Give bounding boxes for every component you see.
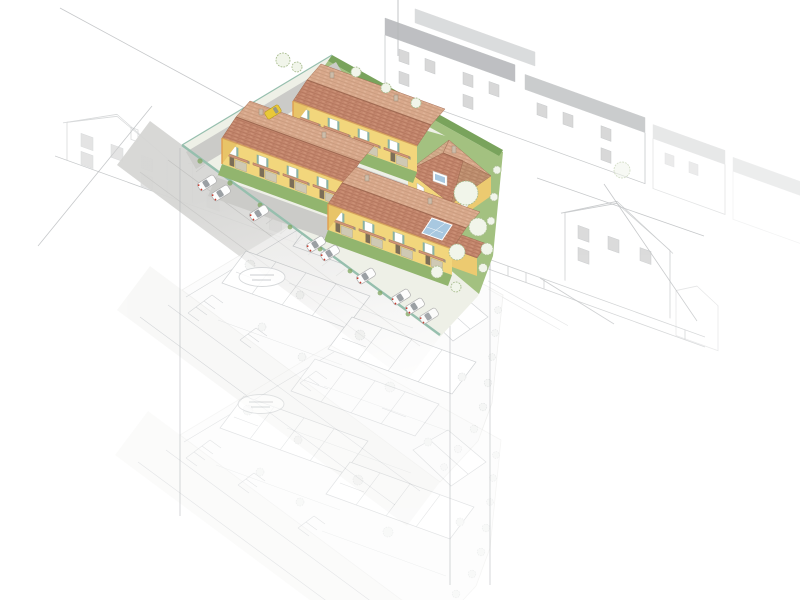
villa-chimney xyxy=(452,146,456,153)
floor-plan-badge-1 xyxy=(239,268,285,287)
architectural-axonometric-drawing xyxy=(0,0,800,600)
floor-plan-badge-2 xyxy=(238,395,284,414)
drawing-canvas xyxy=(0,0,800,600)
background-tree xyxy=(614,162,630,178)
